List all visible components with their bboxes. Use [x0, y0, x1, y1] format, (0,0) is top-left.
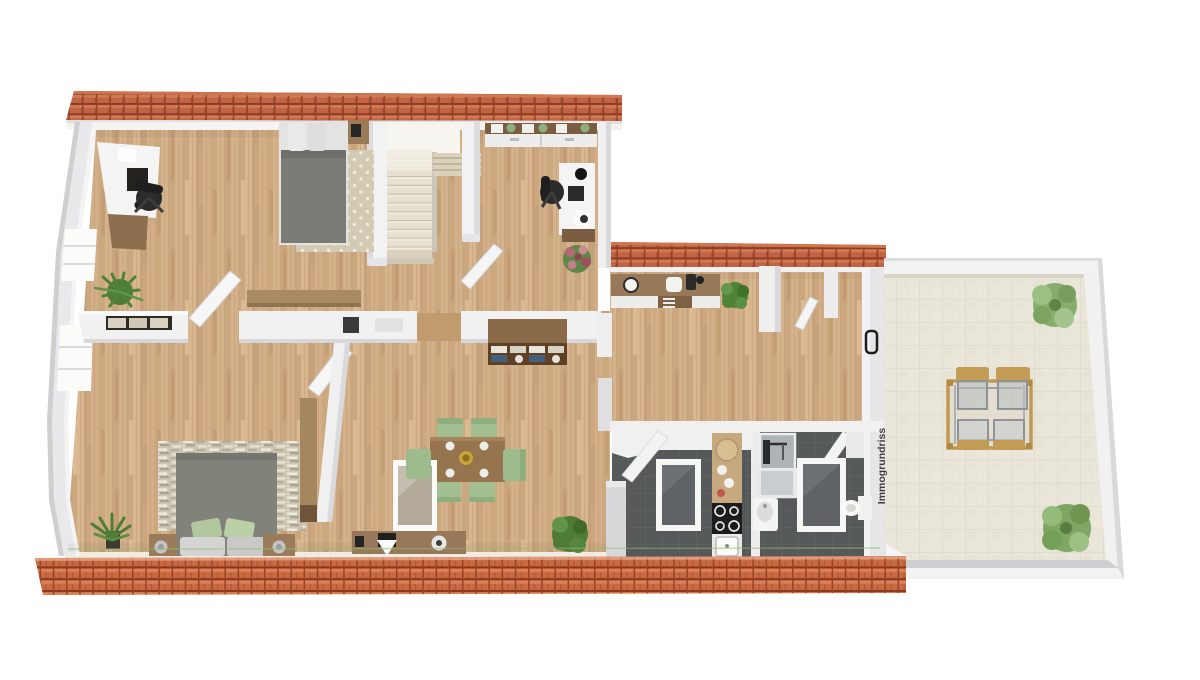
svg-text:Immogrundriss: Immogrundriss — [876, 428, 888, 505]
